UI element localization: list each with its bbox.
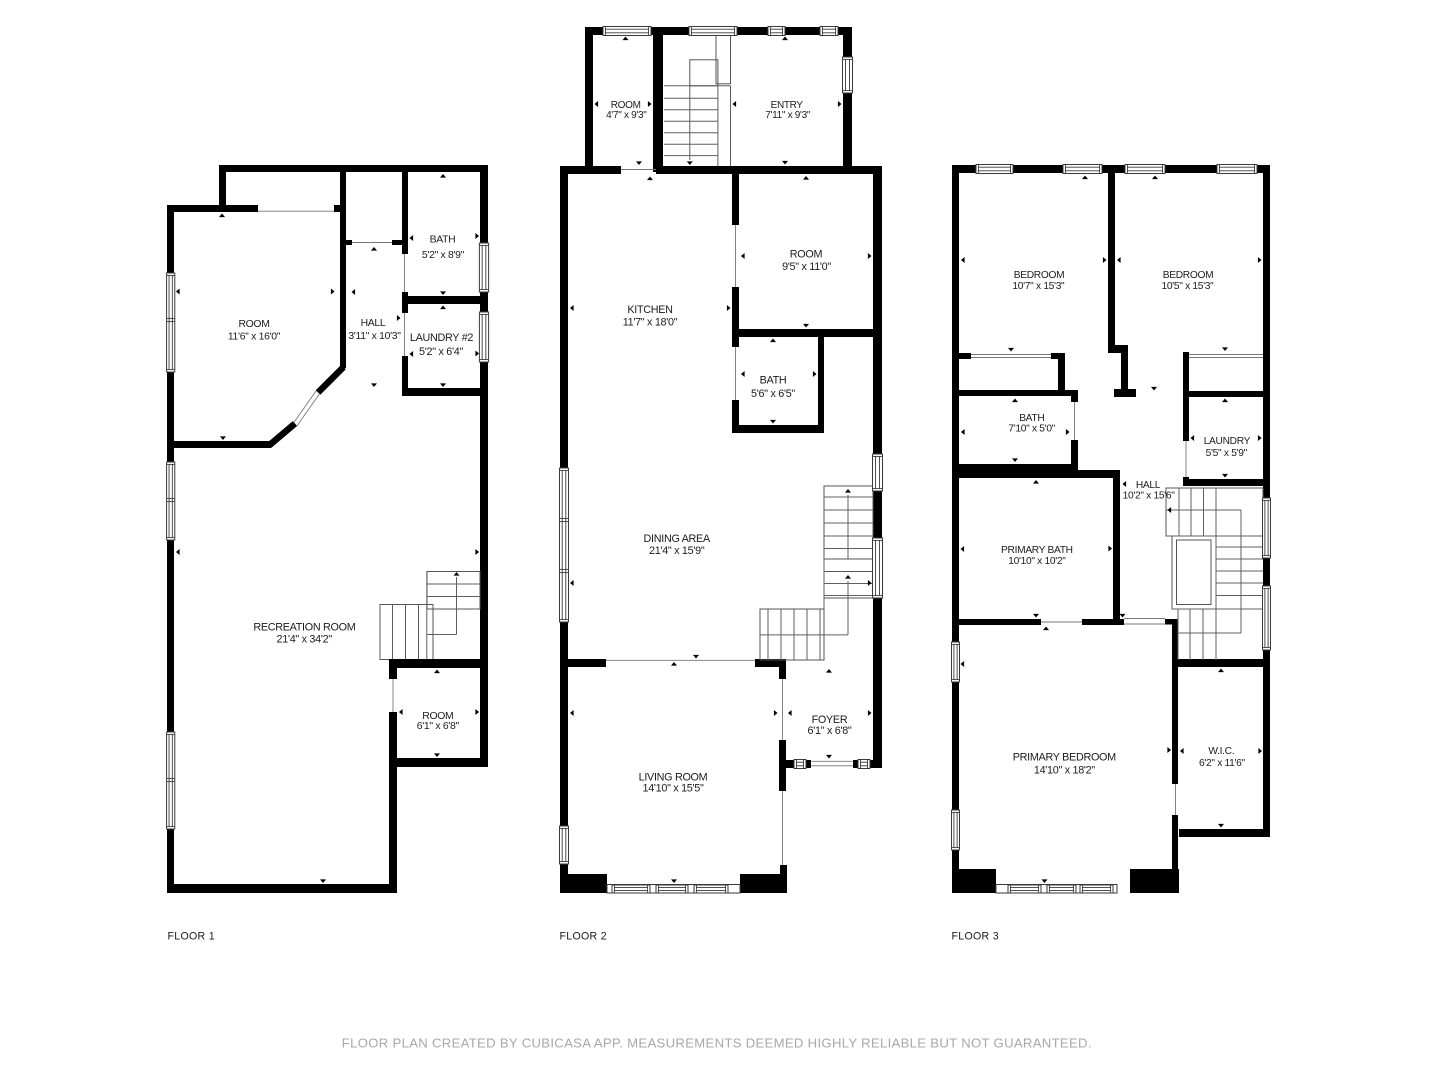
svg-text:6'1" x 6'8": 6'1" x 6'8" (808, 725, 852, 737)
svg-text:BATH: BATH (1019, 413, 1044, 424)
svg-text:BATH: BATH (760, 375, 787, 387)
svg-text:5'2" x 6'4": 5'2" x 6'4" (419, 346, 463, 358)
svg-text:BATH: BATH (430, 235, 456, 246)
svg-text:ROOM: ROOM (790, 249, 823, 261)
svg-text:11'6" x 16'0": 11'6" x 16'0" (228, 332, 281, 343)
svg-text:9'5" x 11'0": 9'5" x 11'0" (782, 261, 831, 273)
svg-text:LAUNDRY #2: LAUNDRY #2 (410, 332, 474, 344)
svg-text:10'7" x 15'3": 10'7" x 15'3" (1012, 281, 1065, 292)
svg-text:FLOOR PLAN CREATED BY CUBICASA: FLOOR PLAN CREATED BY CUBICASA APP. MEAS… (342, 1036, 1092, 1051)
svg-text:DINING AREA: DINING AREA (644, 533, 711, 545)
svg-text:10'5" x 15'3": 10'5" x 15'3" (1162, 281, 1215, 292)
svg-text:PRIMARY BEDROOM: PRIMARY BEDROOM (1013, 751, 1116, 763)
svg-text:FLOOR 1: FLOOR 1 (168, 931, 215, 943)
svg-text:21'4" x 15'9": 21'4" x 15'9" (649, 545, 705, 557)
svg-text:10'2" x 15'6": 10'2" x 15'6" (1123, 491, 1176, 502)
svg-text:LIVING ROOM: LIVING ROOM (639, 771, 708, 783)
svg-text:PRIMARY BATH: PRIMARY BATH (1001, 545, 1073, 556)
svg-text:5'2" x 8'9": 5'2" x 8'9" (422, 250, 465, 261)
svg-text:10'10" x 10'2": 10'10" x 10'2" (1008, 556, 1066, 567)
svg-text:BEDROOM: BEDROOM (1014, 270, 1065, 281)
svg-text:3'11" x 10'3": 3'11" x 10'3" (348, 331, 401, 342)
svg-text:RECREATION ROOM: RECREATION ROOM (253, 622, 355, 634)
svg-text:7'11" x 9'3": 7'11" x 9'3" (765, 110, 811, 121)
svg-text:HALL: HALL (361, 318, 386, 329)
svg-text:ROOM: ROOM (238, 319, 269, 330)
svg-text:11'7" x 18'0": 11'7" x 18'0" (623, 317, 678, 329)
svg-text:BEDROOM: BEDROOM (1163, 270, 1214, 281)
svg-text:FOYER: FOYER (812, 714, 848, 726)
svg-text:LAUNDRY: LAUNDRY (1204, 436, 1251, 447)
svg-text:7'10" x 5'0": 7'10" x 5'0" (1008, 424, 1055, 435)
svg-text:W.I.C.: W.I.C. (1208, 746, 1234, 757)
svg-text:14'10" x 18'2": 14'10" x 18'2" (1034, 764, 1095, 776)
svg-text:HALL: HALL (1136, 480, 1161, 491)
svg-text:6'1" x 6'8": 6'1" x 6'8" (417, 721, 460, 732)
svg-text:14'10" x 15'5": 14'10" x 15'5" (642, 783, 703, 795)
svg-text:4'7" x 9'3": 4'7" x 9'3" (606, 110, 647, 121)
svg-text:21'4" x 34'2": 21'4" x 34'2" (277, 633, 333, 645)
svg-text:KITCHEN: KITCHEN (627, 304, 672, 316)
svg-text:5'5" x 5'9": 5'5" x 5'9" (1206, 448, 1248, 459)
svg-text:5'6" x 6'5": 5'6" x 6'5" (751, 388, 795, 400)
svg-text:FLOOR 2: FLOOR 2 (560, 931, 607, 943)
svg-text:6'2" x 11'6": 6'2" x 11'6" (1199, 758, 1246, 769)
svg-text:FLOOR 3: FLOOR 3 (952, 931, 999, 943)
